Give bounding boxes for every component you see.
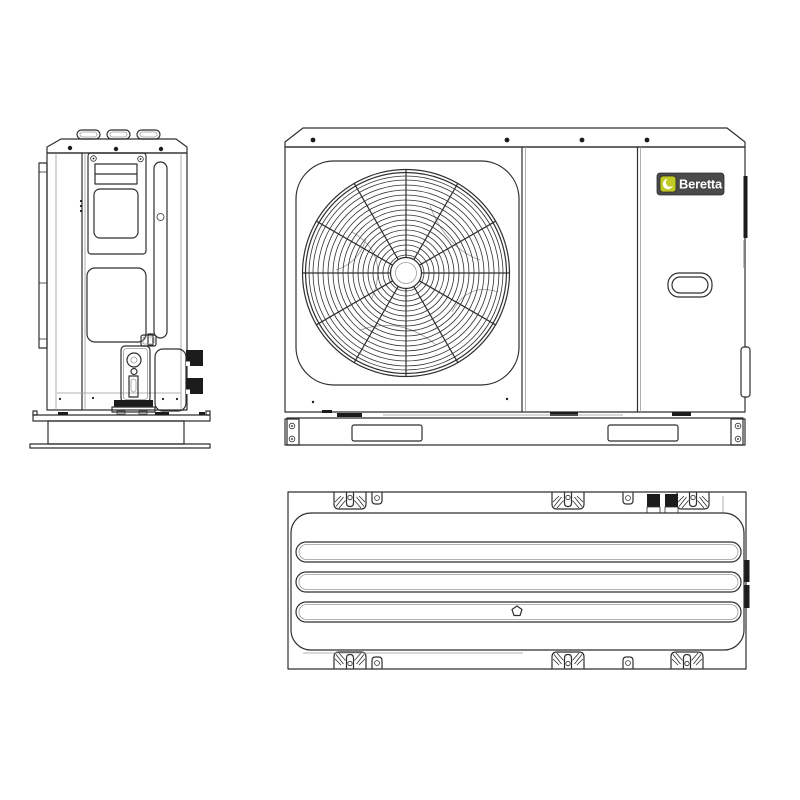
mounting-bracket [552, 652, 584, 668]
base-foot [48, 421, 184, 444]
service-panel-upper [88, 153, 146, 254]
front-top-cap [285, 128, 745, 147]
mounting-bracket [671, 652, 703, 668]
pipe-connections [186, 350, 203, 394]
valve-base-bracket [114, 400, 153, 407]
door-handle [668, 273, 712, 297]
panel-dots [59, 200, 178, 400]
vent-slat [296, 542, 741, 562]
brand-text: Beretta [679, 178, 723, 192]
front-panel-seams [522, 147, 641, 412]
top-outline [288, 492, 746, 669]
edge-clips [745, 560, 750, 608]
access-panel-lower [87, 268, 146, 342]
mounting-bracket [334, 493, 366, 509]
side-base [30, 411, 210, 448]
foot-cutout-right [608, 425, 678, 441]
valve-assembly [112, 335, 156, 414]
vent-slat [296, 572, 741, 592]
technical-drawing-page: Beretta [0, 0, 800, 800]
foot-cutout-left [352, 425, 422, 441]
inspection-window [94, 189, 138, 238]
wiring-knockouts [647, 494, 723, 513]
top-view [288, 492, 750, 669]
front-cap-screws [311, 138, 650, 143]
side-cabinet-outline [47, 153, 187, 410]
back-flange [39, 163, 47, 348]
mounting-bracket [334, 652, 366, 668]
top-panel [291, 513, 744, 650]
side-cap-screws [68, 146, 163, 151]
bolt-tab [623, 493, 633, 504]
handle-slot [148, 162, 167, 345]
bolt-tab [623, 657, 633, 668]
bolt-tab [372, 493, 382, 504]
base-rail [285, 410, 745, 445]
bolt-tab [372, 657, 382, 668]
side-latch [741, 347, 750, 397]
fan-hub [391, 258, 422, 289]
side-view [30, 130, 210, 448]
beretta-logo: Beretta [657, 173, 724, 195]
mounting-bracket [677, 493, 709, 509]
fan-grille [303, 170, 510, 377]
emblem-mark [512, 606, 522, 616]
front-view: Beretta [285, 128, 750, 445]
mounting-bracket [552, 493, 584, 509]
front-bottom-dots [312, 398, 508, 403]
vent-slat [296, 602, 741, 622]
top-vent-caps [77, 130, 160, 139]
ground-rail [30, 444, 210, 448]
heat-pump-three-view-drawing: Beretta [0, 0, 800, 800]
